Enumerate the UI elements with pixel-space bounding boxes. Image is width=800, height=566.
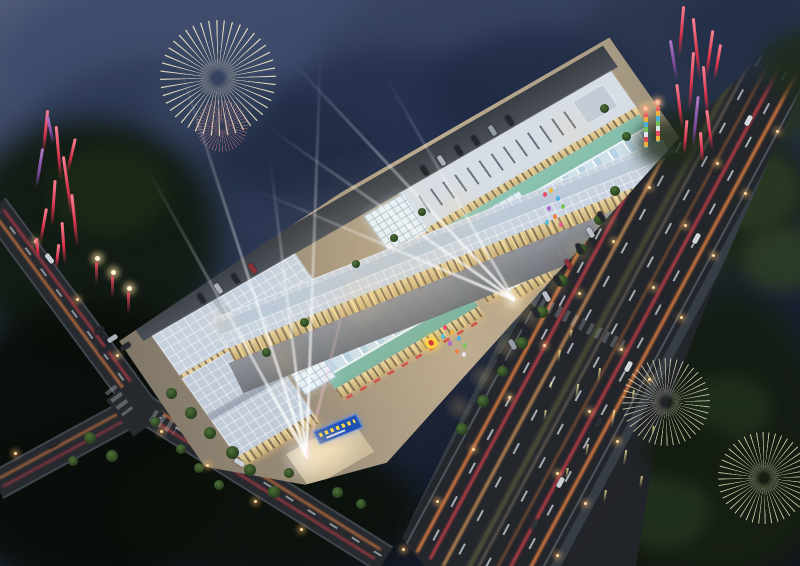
red-streamer-firework bbox=[705, 30, 714, 78]
red-streamer-firework bbox=[70, 194, 78, 246]
fountain-jets bbox=[305, 456, 309, 460]
light-trail bbox=[2, 209, 149, 407]
lantern-lamp bbox=[95, 256, 100, 261]
firework-burst bbox=[718, 432, 800, 524]
red-streamer-firework bbox=[692, 18, 701, 80]
tree-canopy-blob bbox=[150, 60, 270, 140]
red-streamer-firework bbox=[50, 180, 56, 226]
street-lamp-light bbox=[254, 500, 257, 503]
street-tree bbox=[356, 499, 366, 509]
red-streamer-firework bbox=[702, 66, 709, 116]
firework-burst bbox=[160, 20, 276, 136]
tree-canopy-blob bbox=[20, 60, 300, 230]
red-streamer-firework bbox=[61, 222, 66, 264]
firework-burst bbox=[196, 100, 248, 152]
street-tree bbox=[106, 450, 118, 462]
tree-canopy-blob bbox=[0, 0, 430, 160]
tree-canopy-blob bbox=[686, 376, 772, 440]
red-streamer-firework bbox=[55, 126, 62, 180]
street-lamp-light bbox=[14, 452, 17, 455]
red-streamer-firework bbox=[675, 84, 683, 128]
red-streamer-firework bbox=[46, 116, 54, 144]
logo-mark bbox=[427, 339, 434, 346]
lantern-lamp bbox=[127, 286, 132, 291]
street-tree bbox=[214, 480, 224, 490]
red-streamer-firework bbox=[39, 208, 47, 242]
tree-canopy-blob bbox=[50, 146, 170, 236]
lantern-lamp bbox=[111, 270, 116, 275]
red-streamer-firework bbox=[66, 138, 76, 172]
red-streamer-firework bbox=[62, 156, 73, 216]
street-tree bbox=[332, 487, 343, 498]
red-streamer-firework bbox=[713, 44, 722, 80]
red-streamer-firework bbox=[42, 110, 49, 152]
red-streamer-firework bbox=[678, 6, 685, 56]
red-streamer-firework bbox=[35, 148, 44, 188]
tree-canopy-blob bbox=[742, 226, 800, 292]
street-lamp-light bbox=[402, 548, 405, 551]
red-streamer-firework bbox=[669, 40, 678, 80]
street-tree bbox=[194, 463, 204, 473]
street-lamp-light bbox=[300, 528, 303, 531]
red-streamer-firework bbox=[688, 52, 695, 110]
night-aerial-rendering-scene bbox=[0, 0, 800, 566]
